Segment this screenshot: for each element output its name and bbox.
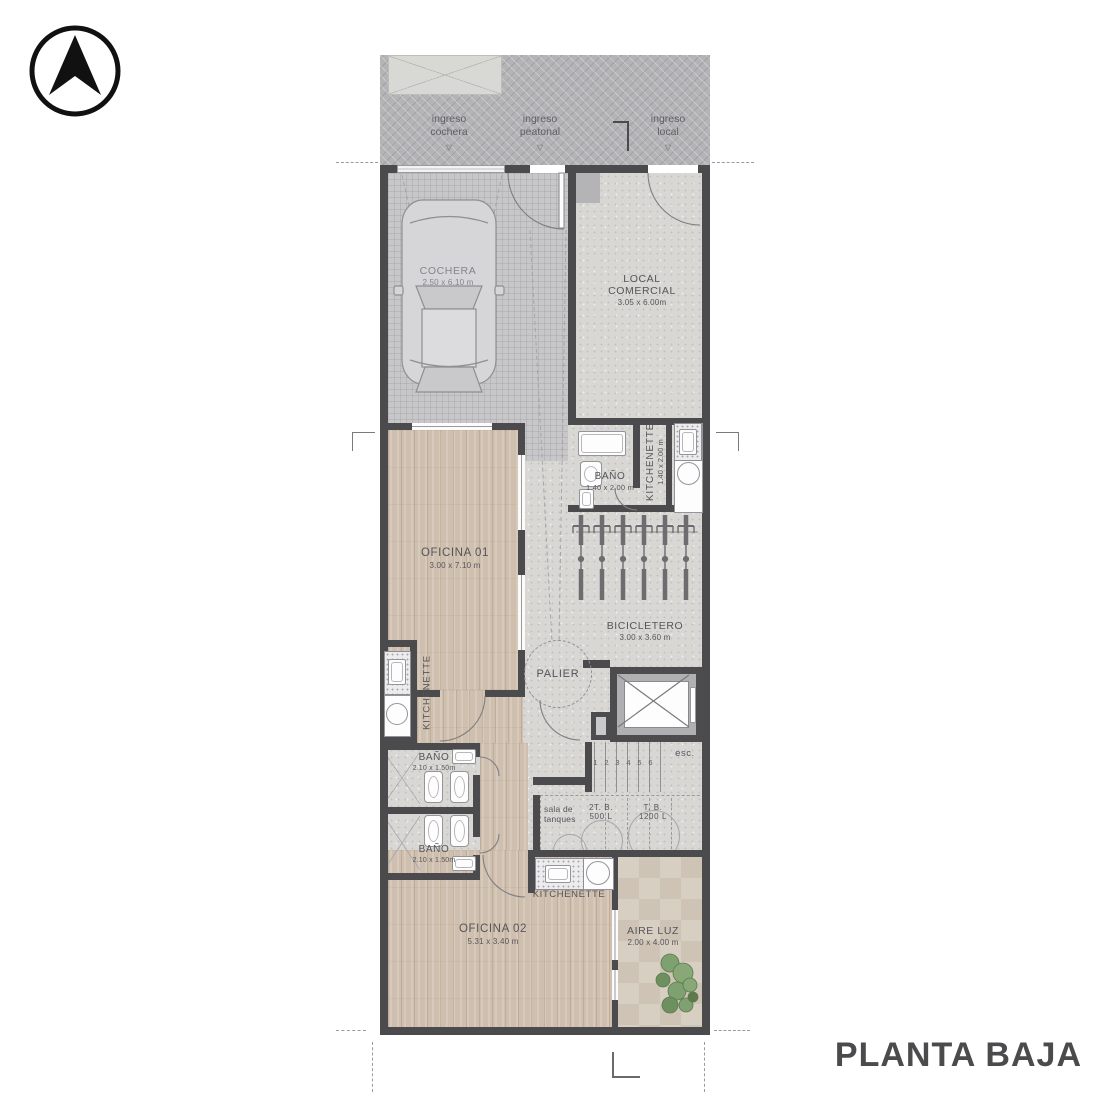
kitchenette-of2-label: KITCHENETTE [526,890,612,901]
wall-of1-right [518,423,525,455]
bano2-label: BAÑO 2.10 x 1.50m [399,844,469,865]
kof1-sink [388,659,406,685]
wall-banos-bottom [380,873,480,880]
wall-kof2-left [528,857,535,893]
wall-of1-bottom [485,690,525,697]
bano1-bidet [450,771,469,803]
wall-palier-south [533,777,585,785]
kof2-basin [586,861,610,885]
lot-corner-right [716,432,739,451]
local-entry-pad [576,173,600,203]
plan-title: PLANTA BAJA [820,1036,1082,1075]
down-arrow-icon: ▽ [633,141,703,154]
wall-banos-right [473,775,480,837]
entrance-peatonal-label: ingreso peatonal ▽ [505,113,575,154]
window-of1-right [518,575,525,650]
elevator-cab [624,681,689,728]
wall-right [702,165,710,1035]
shaft-box [591,712,611,740]
kitchenette-of1-label: KITCHENETTE [422,646,433,740]
wall-aireluz [612,1000,618,1027]
bano2-toilet [424,815,443,847]
oficina01-label: OFICINA 01 3.00 x 7.10 m [395,547,515,570]
floor-plan: ingreso cochera ▽ ingreso peatonal ▽ ing… [380,55,710,1035]
lot-corner-bottom [612,1052,640,1078]
stair-number: 1 [590,758,601,767]
lot-mark [712,162,754,163]
klocal-basin [677,462,700,485]
kof1-basin [386,703,408,725]
kof2-sink [545,865,571,883]
garage-door [397,165,505,173]
stair-number: 3 [612,758,623,767]
wall-hall-local [568,173,576,418]
entrance-line: peatonal [520,126,560,138]
wall-bottom [380,1027,710,1035]
lot-mark [336,1030,366,1031]
entrance-cochera-label: ingreso cochera ▽ [414,113,484,154]
kitchenette-local-label: KITCHENETTE 1.40 x 2.00 m [645,415,665,509]
lot-mark [336,162,378,163]
oficina02-label: OFICINA 02 5.31 x 3.40 m [433,923,553,946]
wall-top [698,165,710,173]
banolocal-tub [578,431,626,456]
window-of1-right [518,455,525,530]
wall-kof1-top [380,640,417,647]
sidewalk-slab [388,55,502,95]
cochera-floor [388,173,568,461]
entrance-line: ingreso [432,113,466,125]
palier-label: PALIER [536,668,579,680]
bano1-toilet [424,771,443,803]
entrance-line: ingreso [523,113,557,125]
stairs-esc-label: esc. [668,749,702,760]
klocal-sink [679,429,697,455]
lot-mark [714,1030,750,1031]
stair-number: 4 [623,758,634,767]
tank-500-label: 2T. B. 500 L [578,803,624,821]
wall-top [505,165,530,173]
lot-mark [372,1042,373,1092]
wall-sala-left [533,795,540,857]
wall-of1-right [518,530,525,575]
cochera-label: COCHERA 2.50 x 6.10 m [398,265,498,287]
palier-circle: PALIER [524,640,592,708]
down-arrow-icon: ▽ [505,141,575,154]
wall-left [380,165,388,1035]
stair-number: 6 [645,758,656,767]
window-aireluz [612,970,618,1000]
entrance-line: local [657,126,679,138]
stair-number: 2 [601,758,612,767]
bano2-bidet [450,815,469,847]
corridor-floor-upper [417,690,523,743]
wall-top [565,165,648,173]
corridor-floor [480,743,528,853]
wall-kof1-right [410,647,417,737]
lot-mark [704,1042,705,1092]
wall-of1-top [388,423,412,430]
bano1-label: BAÑO 2.10 x 1.50m [399,752,469,773]
tank-1200-label: T. B. 1200 L [628,803,678,821]
wall-kitch-local [666,418,672,512]
wall-top [380,165,397,173]
corner-bracket-mark [613,121,629,151]
entrance-local-label: ingreso local ▽ [633,113,703,154]
elevator-door-slit [690,687,696,723]
bicicletero-label: BICICLETERO 3.00 x 3.60 m [585,620,705,642]
entrance-line: cochera [430,126,467,138]
local-comercial-label: LOCAL COMERCIAL 3.05 x 6.00m [582,273,702,307]
wall-aireluz [612,960,618,970]
lot-corner-left [352,432,375,451]
floorplan-page: { "plan_title": "PLANTA BAJA", "glyphs":… [0,0,1100,1100]
down-arrow-icon: ▽ [414,141,484,154]
wall-sala-bottom [528,850,710,857]
entrance-line: ingreso [651,113,685,125]
wall-banos-mid [380,807,480,814]
window-of1-top [412,423,492,430]
aire-luz-label: AIRE LUZ 2.00 x 4.00 m [593,925,713,947]
north-arrow-icon [26,22,124,120]
stair-number: 5 [634,758,645,767]
bano-local-label: BAÑO 1.40 x 2.00 m [570,471,650,492]
